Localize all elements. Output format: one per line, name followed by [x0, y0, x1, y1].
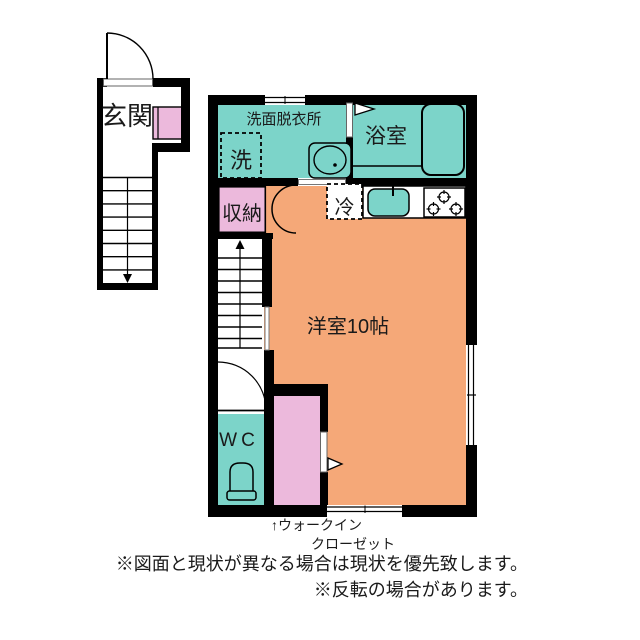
washroom-doorway	[299, 180, 346, 185]
window-top	[265, 95, 305, 105]
storage-label: 収納	[218, 197, 266, 226]
washroom-label: 洗面脱衣所	[214, 108, 354, 129]
genkan-label: 玄関	[101, 96, 153, 133]
window-bottom	[327, 505, 402, 514]
washer-label: 洗	[221, 143, 261, 175]
kitchen-sink	[368, 189, 409, 216]
wall	[262, 235, 272, 307]
wall	[402, 505, 477, 517]
washbasin	[309, 143, 351, 178]
stairs-down	[103, 178, 152, 284]
entrance-door	[107, 33, 153, 79]
wall	[320, 472, 328, 505]
bath-label: 浴室	[356, 120, 416, 150]
wall	[181, 78, 190, 152]
shoe-cabinet	[153, 107, 182, 139]
entrance-threshold	[104, 79, 153, 86]
wall	[346, 95, 353, 103]
closet-doorway	[321, 432, 328, 472]
wall	[97, 283, 158, 290]
wc-label: WC	[216, 430, 262, 452]
floorplan-canvas: 玄関 洗面脱衣所 洗 浴室 収納 冷 洋室10帖 WC ↑ウォークイン クローゼ…	[0, 0, 640, 640]
wall	[208, 95, 218, 517]
disclaimer-note-2: ※反転の場合があります。	[0, 576, 528, 602]
window-right	[466, 345, 477, 445]
fridge-label: 冷	[327, 191, 362, 220]
main-room-label: 洋室10帖	[268, 310, 428, 339]
wall	[264, 384, 328, 396]
wall	[208, 178, 298, 186]
wall	[346, 178, 466, 186]
closet-note-line1: ↑ウォークイン	[271, 515, 362, 535]
disclaimer-note-1: ※図面と現状が異なる場合は現状を優先致します。	[0, 550, 528, 576]
wall	[466, 95, 477, 345]
wall	[264, 350, 274, 505]
walkin-closet-floor	[272, 396, 320, 505]
wall	[320, 396, 328, 432]
toilet	[227, 463, 256, 500]
wall	[152, 143, 158, 290]
kitchen-counter	[363, 182, 466, 218]
